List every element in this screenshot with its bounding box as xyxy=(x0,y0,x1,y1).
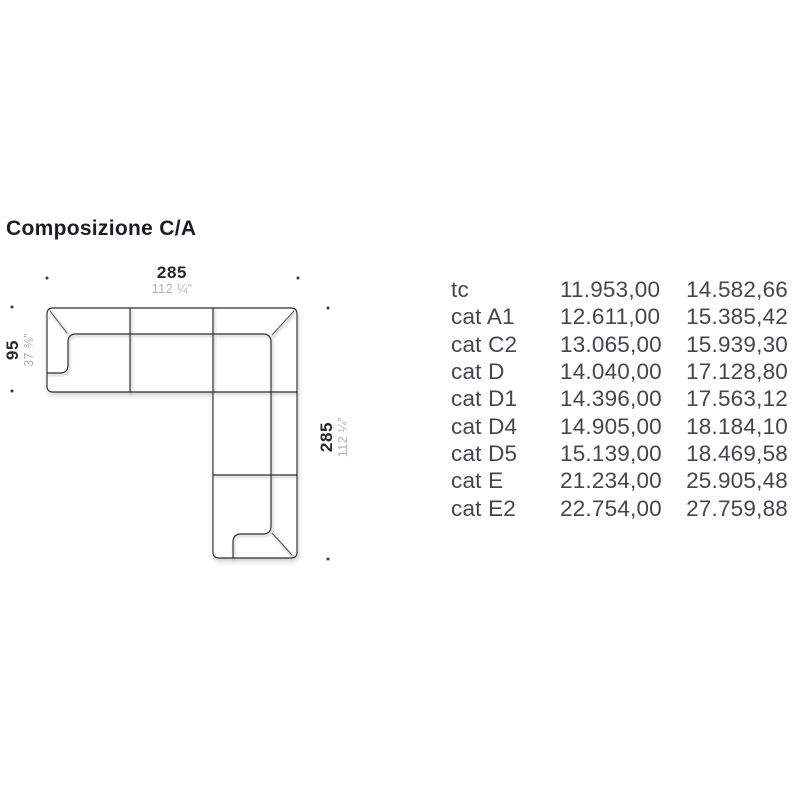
price-row: cat C2 13.065,00 15.939,30 xyxy=(451,331,788,358)
price-column-1: 22.754,00 xyxy=(560,495,655,522)
category-label: cat D1 xyxy=(451,385,560,412)
price-column-1: 21.234,00 xyxy=(560,467,655,494)
price-column-2: 27.759,88 xyxy=(655,495,788,522)
price-row: cat E2 22.754,00 27.759,88 xyxy=(451,495,788,522)
dimension-left: 95 37 ⅜” xyxy=(4,333,36,367)
category-label: cat E xyxy=(451,467,560,494)
price-row: cat A1 12.611,00 15.385,42 xyxy=(451,303,788,330)
category-label: cat E2 xyxy=(451,495,560,522)
price-row: cat D1 14.396,00 17.563,12 xyxy=(451,385,788,412)
price-row: cat D5 15.139,00 18.469,58 xyxy=(451,440,788,467)
dimension-top-cm: 285 xyxy=(47,264,297,282)
dimension-top-inches: 112 ¼” xyxy=(47,282,297,296)
category-label: tc xyxy=(451,276,560,303)
price-column-2: 14.582,66 xyxy=(655,276,788,303)
composition-diagram: 285 112 ¼” 95 37 ⅜” 285 112 ¼” xyxy=(0,255,380,585)
price-column-2: 17.128,80 xyxy=(655,358,788,385)
dimension-right-inches: 112 ¼” xyxy=(336,417,350,457)
price-column-1: 13.065,00 xyxy=(560,331,655,358)
dimension-left-inches: 37 ⅜” xyxy=(22,333,36,367)
category-label: cat C2 xyxy=(451,331,560,358)
category-label: cat D4 xyxy=(451,413,560,440)
category-label: cat A1 xyxy=(451,303,560,330)
price-column-1: 11.953,00 xyxy=(560,276,655,303)
price-column-2: 15.385,42 xyxy=(655,303,788,330)
price-column-1: 15.139,00 xyxy=(560,440,655,467)
category-label: cat D5 xyxy=(451,440,560,467)
sofa-body xyxy=(47,308,297,558)
dimension-top: 285 112 ¼” xyxy=(47,264,297,296)
price-column-1: 14.905,00 xyxy=(560,413,655,440)
price-column-2: 17.563,12 xyxy=(655,385,788,412)
price-row: cat D 14.040,00 17.128,80 xyxy=(451,358,788,385)
price-column-1: 14.396,00 xyxy=(560,385,655,412)
price-row: cat E 21.234,00 25.905,48 xyxy=(451,467,788,494)
dimension-left-cm: 95 xyxy=(4,333,22,367)
dimension-right: 285 112 ¼” xyxy=(318,417,350,457)
price-table: tc 11.953,00 14.582,66 cat A1 12.611,00 … xyxy=(451,276,788,522)
page-title: Composizione C/A xyxy=(6,217,196,241)
price-row: cat D4 14.905,00 18.184,10 xyxy=(451,413,788,440)
price-column-2: 25.905,48 xyxy=(655,467,788,494)
price-column-2: 18.184,10 xyxy=(655,413,788,440)
price-column-2: 15.939,30 xyxy=(655,331,788,358)
price-column-1: 12.611,00 xyxy=(560,303,655,330)
price-column-2: 18.469,58 xyxy=(655,440,788,467)
price-column-1: 14.040,00 xyxy=(560,358,655,385)
dimension-right-cm: 285 xyxy=(318,417,336,457)
category-label: cat D xyxy=(451,358,560,385)
price-row: tc 11.953,00 14.582,66 xyxy=(451,276,788,303)
